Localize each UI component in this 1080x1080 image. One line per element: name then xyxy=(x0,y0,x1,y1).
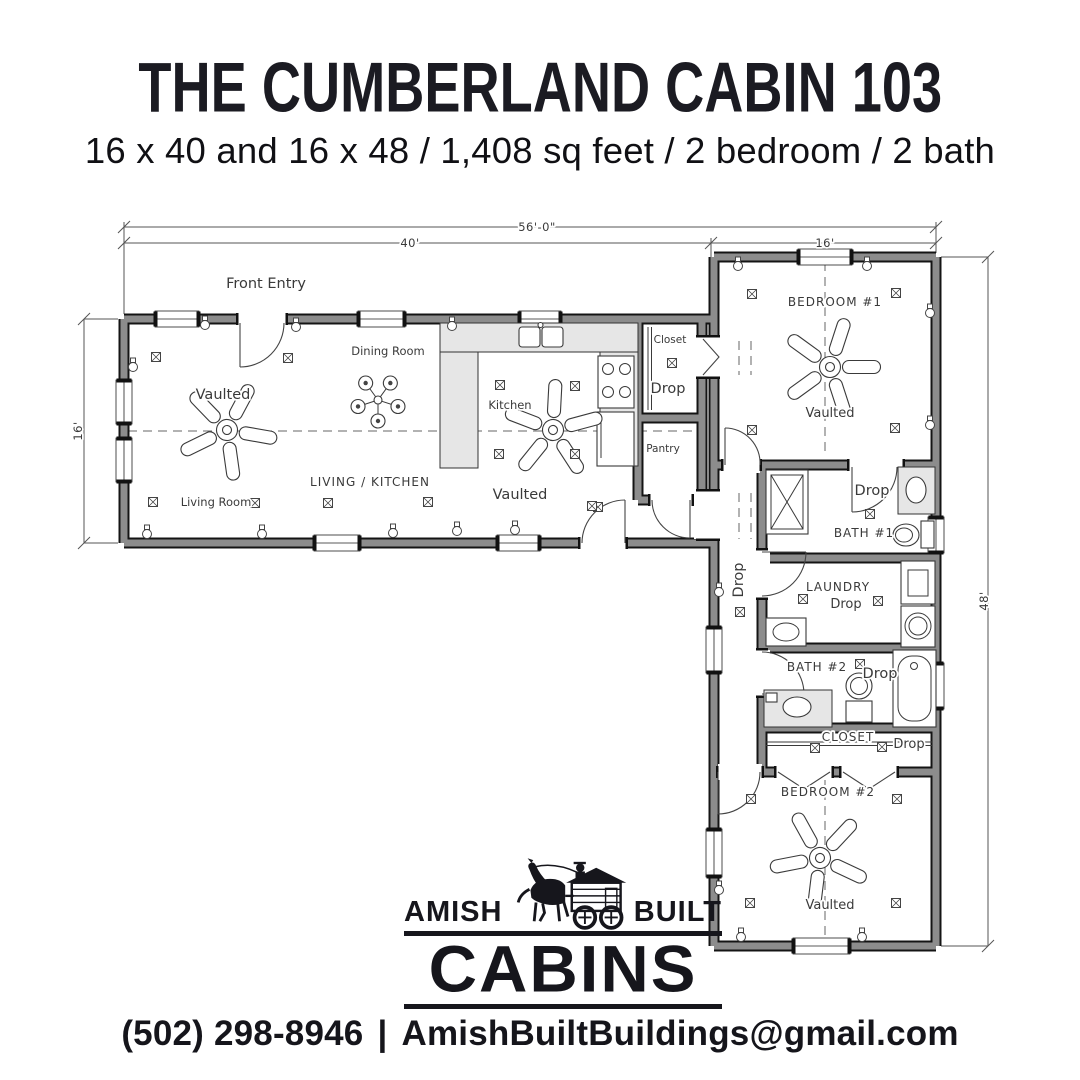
outlet-symbol xyxy=(424,498,433,507)
contact-phone: (502) 298-8946 xyxy=(121,1014,363,1053)
outlet-symbol xyxy=(891,424,900,433)
dining-light xyxy=(351,376,405,428)
window xyxy=(116,379,132,426)
bathtub xyxy=(893,650,936,727)
window xyxy=(357,311,407,327)
wall-light-icon xyxy=(511,521,520,535)
dimension-label-overall: 56'-0" xyxy=(518,220,556,234)
outlet-symbol xyxy=(892,289,901,298)
outlet-symbol xyxy=(571,382,580,391)
outlet-symbol xyxy=(496,381,505,390)
laundry-sink xyxy=(766,618,806,646)
dimension-label-right-width: 16' xyxy=(815,236,834,250)
label-kitchen: Kitchen xyxy=(488,398,531,412)
outlet-symbol xyxy=(149,498,158,507)
label-vaulted-bedroom2: Vaulted xyxy=(805,898,854,913)
wall-light-icon xyxy=(858,928,867,942)
washer-dryer xyxy=(901,561,935,647)
label-bedroom2: BEDROOM #2 xyxy=(781,785,875,799)
contact-email: AmishBuiltBuildings@gmail.com xyxy=(401,1014,958,1053)
window xyxy=(154,311,201,327)
outlet-symbol xyxy=(736,608,745,617)
outlet-symbol xyxy=(571,450,580,459)
label-bedroom1: BEDROOM #1 xyxy=(788,295,882,309)
wall-light-icon xyxy=(737,928,746,942)
label-hall-drop: Drop xyxy=(731,563,747,598)
label-bath1-drop: Drop xyxy=(855,483,890,499)
label-laundry-drop: Drop xyxy=(830,597,861,612)
outlet-symbol xyxy=(748,290,757,299)
label-closet-kitchen: Closet xyxy=(654,334,687,346)
window xyxy=(797,249,854,265)
window xyxy=(496,535,542,551)
dimension-label-left-depth: 16' xyxy=(71,421,85,440)
outlet-symbol xyxy=(874,597,883,606)
outlet-symbol xyxy=(747,795,756,804)
outlet-symbol xyxy=(892,899,901,908)
dimension-label-right-length: 48' xyxy=(977,591,991,610)
stove xyxy=(598,356,634,408)
label-pantry: Pantry xyxy=(646,443,680,455)
outlet-symbol xyxy=(284,354,293,363)
label-bath2: BATH #2 xyxy=(787,660,847,674)
logo-built-text: BUILT xyxy=(634,898,722,931)
outlet-symbol xyxy=(799,595,808,604)
wall-light-icon xyxy=(258,525,267,539)
outlet-symbol xyxy=(893,795,902,804)
wall-light-icon xyxy=(389,524,398,538)
label-front-entry: Front Entry xyxy=(226,276,306,292)
wall-light-icon xyxy=(143,525,152,539)
wall-light-icon xyxy=(453,522,462,536)
label-laundry: LAUNDRY xyxy=(806,580,870,594)
label-closet-kitchen-drop: Drop xyxy=(651,381,686,397)
outlet-symbol xyxy=(748,426,757,435)
label-living-kitchen: LIVING / KITCHEN xyxy=(310,475,430,489)
dimension-label-left-width: 40' xyxy=(400,236,419,250)
outlet-symbol xyxy=(495,450,504,459)
outlet-symbol xyxy=(588,502,597,511)
outlet-symbol xyxy=(152,353,161,362)
label-bath2-drop: Drop xyxy=(863,666,898,682)
logo-cabins-text: CABINS xyxy=(404,937,722,1004)
window xyxy=(313,535,362,551)
label-closet2: CLOSET xyxy=(822,730,875,744)
toilet-bath1 xyxy=(893,521,934,548)
outlet-symbol xyxy=(811,744,820,753)
window xyxy=(706,626,722,675)
label-vaulted-living: Vaulted xyxy=(196,387,251,403)
contact-bar: (502) 298-8946|AmishBuiltBuildings@gmail… xyxy=(0,1014,1080,1054)
label-closet2-drop: Drop xyxy=(893,737,924,752)
window xyxy=(792,938,852,954)
outlet-symbol xyxy=(324,499,333,508)
label-vaulted-kitchen: Vaulted xyxy=(493,487,548,503)
vanity-bath2 xyxy=(764,690,832,727)
outlet-symbol xyxy=(866,510,875,519)
refrigerator xyxy=(597,412,634,466)
label-dining-room: Dining Room xyxy=(351,344,425,358)
outlet-symbol xyxy=(251,499,260,508)
shower xyxy=(766,470,808,534)
poster-page: THE CUMBERLAND CABIN 103 16 x 40 and 16 … xyxy=(0,0,1080,1080)
outlet-symbol xyxy=(878,743,887,752)
ceiling-fan xyxy=(785,317,880,417)
label-living-room: Living Room xyxy=(181,495,252,509)
label-bath1: BATH #1 xyxy=(834,526,894,540)
wall-light-icon xyxy=(129,358,138,372)
contact-separator: | xyxy=(377,1014,387,1053)
vanity-bath1 xyxy=(898,467,935,514)
label-vaulted-bedroom1: Vaulted xyxy=(805,406,854,421)
outlet-symbol xyxy=(668,359,677,368)
window xyxy=(116,437,132,484)
outlet-symbol xyxy=(746,899,755,908)
horse-and-wagon-icon xyxy=(506,856,630,932)
door-swing xyxy=(240,323,284,367)
brand-logo: AMISH xyxy=(404,856,722,1009)
logo-amish-text: AMISH xyxy=(404,898,502,931)
